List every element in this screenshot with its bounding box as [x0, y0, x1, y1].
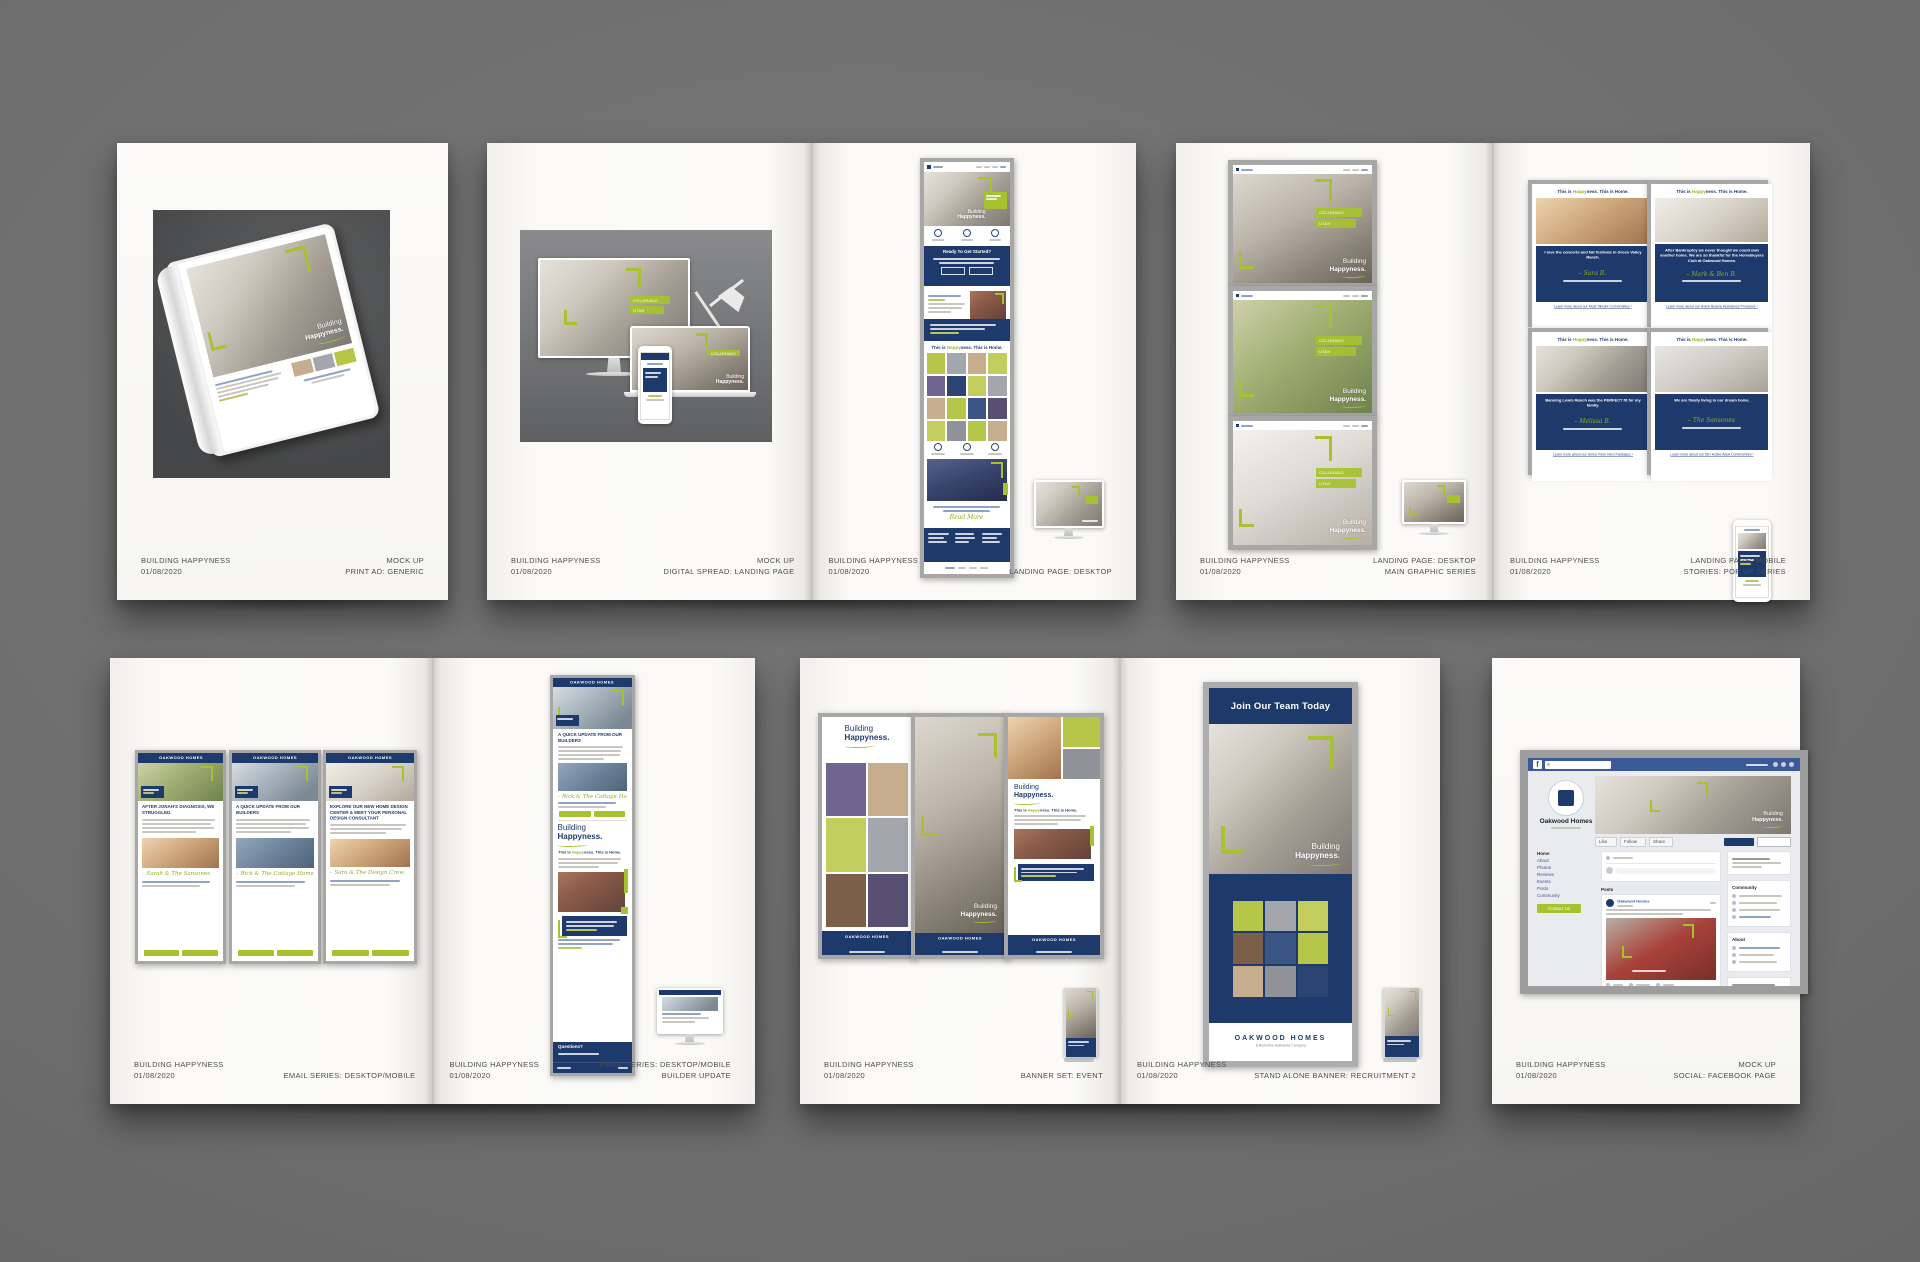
footer-title: BUILDING HAPPYNESS — [1510, 555, 1600, 567]
testimonial-signature: – Melissa B. — [1539, 418, 1646, 425]
page-footer-left: BUILDING HAPPYNESS 01/08/2020 — [1137, 1059, 1227, 1082]
landing-cta-band: Ready To Get Started? — [924, 246, 1010, 286]
post-photo[interactable] — [1606, 918, 1716, 980]
menu-item-posts[interactable]: Posts — [1537, 886, 1595, 891]
placeholder-copy-lines — [928, 291, 967, 319]
posts-label: Posts — [1601, 887, 1721, 892]
email-button[interactable] — [277, 950, 313, 956]
placeholder-copy-lines — [558, 802, 627, 808]
landing-footer — [924, 528, 1010, 562]
oakwood-logo: OAKWOOD HOMES — [138, 753, 223, 763]
send-message-button[interactable] — [1757, 837, 1791, 847]
page-email-series: OAKWOOD HOMES AFTER JONAH'S DIAGNOSIS, W… — [110, 658, 433, 1104]
page-main-graphic-series: COLORADO UTAH BuildingHappyness. — [1176, 143, 1493, 600]
footer-date: 01/08/2020 — [141, 566, 231, 578]
colorado-button[interactable]: COLORADO — [1316, 468, 1362, 477]
footer-label: DIGITAL SPREAD: LANDING PAGE — [664, 566, 795, 578]
page-footer-left: BUILDING HAPPYNESS 01/08/2020 — [1510, 555, 1600, 578]
banner-photo: BuildingHappyness. — [1209, 724, 1352, 874]
page-avatar[interactable] — [1548, 780, 1584, 816]
story-link[interactable]: Learn more about our Home Town Hero Pack… — [1536, 453, 1649, 457]
page-footer-right: MOCK UP DIGITAL SPREAD: LANDING PAGE — [664, 555, 795, 578]
footer-date: 01/08/2020 — [824, 1070, 914, 1082]
landing-quote-band — [924, 319, 1010, 341]
cover-row: Oakwood Homes BuildingHappyness. — [1537, 776, 1791, 834]
footer-date: 01/08/2020 — [1510, 566, 1600, 578]
campaign-logo: BuildingHappyness. — [961, 903, 998, 923]
placeholder-copy-lines — [330, 878, 410, 888]
footer-title: BUILDING HAPPYNESS — [824, 1059, 914, 1071]
placeholder-copy-lines — [1014, 815, 1094, 825]
utah-button[interactable]: UTAH — [1316, 219, 1356, 228]
sheet-banners: BuildingHappyness. OAKWOOD HOMES — [800, 658, 1440, 1104]
banner-heading-bar: Join Our Team Today — [1209, 688, 1352, 724]
email-button[interactable] — [182, 950, 218, 956]
colorado-button[interactable]: COLORADO — [708, 350, 740, 356]
notifications-icon[interactable] — [1773, 762, 1778, 767]
email-signature: – Rick & The Cottage Home Crew — [558, 794, 627, 800]
testimonial-box: We are finally living in our dream home.… — [1655, 394, 1768, 450]
footer-label: EMAIL SERIES: DESKTOP/MOBILE — [284, 1070, 416, 1082]
banner-copy: BuildingHappyness. This is Happyness. Th… — [1008, 779, 1100, 881]
email-header: OAKWOOD HOMES — [232, 753, 318, 763]
community-card: Community — [1727, 880, 1791, 927]
logo-tagline: A Berkshire Hathaway Company — [1209, 1044, 1352, 1048]
story-card-2: This is Happyness. This is Home. After B… — [1647, 180, 1768, 327]
rollup-banner-mockup — [1383, 988, 1417, 1068]
landing-bottom-bar — [924, 562, 1010, 574]
email-button[interactable] — [332, 950, 369, 956]
page-footer-left: BUILDING HAPPYNESS 01/08/2020 — [829, 555, 919, 578]
facebook-top-bar: f — [1528, 758, 1800, 771]
placeholder-copy-lines — [558, 858, 627, 868]
page-footer-left: BUILDING HAPPYNESS 01/08/2020 — [824, 1059, 914, 1082]
page-footer-right: EMAIL SERIES: DESKTOP/MOBILE — [284, 1070, 416, 1082]
search-input[interactable] — [1545, 761, 1611, 769]
messages-icon[interactable] — [1781, 762, 1786, 767]
page-banner-set: BuildingHappyness. OAKWOOD HOMES — [800, 658, 1120, 1104]
page-pop-up-series: This is Happyness. This is Home. I love … — [1493, 143, 1810, 600]
footer-label: STAND ALONE BANNER: RECRUITMENT 2 — [1254, 1070, 1416, 1082]
footer-title: BUILDING HAPPYNESS — [1200, 555, 1290, 567]
email-button[interactable] — [144, 950, 180, 956]
info-card — [1727, 851, 1791, 875]
read-more-link[interactable]: Read More — [924, 514, 1010, 521]
sheet-email-series: OAKWOOD HOMES AFTER JONAH'S DIAGNOSIS, W… — [110, 658, 755, 1104]
email-button[interactable] — [372, 950, 409, 956]
page-recruitment-banner: Join Our Team Today BuildingHappyness. — [1120, 658, 1440, 1104]
footer-date: 01/08/2020 — [1137, 1070, 1227, 1082]
utah-button[interactable]: UTAH — [1316, 479, 1356, 488]
placeholder-copy-lines — [142, 879, 219, 889]
story-link[interactable]: Learn more about our Home Buying Assista… — [1655, 305, 1768, 309]
banner-photo-mosaic — [822, 763, 912, 927]
oakwood-logo: OAKWOOD HOMES — [1235, 1035, 1327, 1042]
menu-icon[interactable] — [1789, 762, 1794, 767]
page-footer-right: EMAIL SERIES: DESKTOP/MOBILE BUILDER UPD… — [599, 1059, 731, 1082]
colorado-button[interactable]: COLORADO — [630, 296, 670, 304]
email-headline: A QUICK UPDATE FROM OUR BUILDERS — [558, 732, 627, 744]
landing-page-screenshot: BuildingHappyness. Ready To Get Started? — [924, 162, 1010, 574]
page-footer-left: BUILDING HAPPYNESS 01/08/2020 — [1200, 555, 1290, 578]
page-footer-left: BUILDING HAPPYNESS 01/08/2020 — [450, 1059, 540, 1082]
post-card: Oakwood Homes — [1601, 894, 1721, 986]
page-footer-right: LANDING PAGE: MOBILE STORIES: POP UP SER… — [1684, 555, 1786, 578]
story-link[interactable]: Learn more about our 55+ Active Adult Co… — [1655, 453, 1768, 457]
primary-cta-button[interactable] — [1724, 838, 1754, 846]
facebook-body: Oakwood Homes BuildingHappyness. — [1528, 771, 1800, 986]
testimonial-box: Banning Lewis Ranch was the PERFECT fit … — [1536, 394, 1649, 450]
event-banner-3: BuildingHappyness. This is Happyness. Th… — [1004, 713, 1104, 959]
footer-label: EMAIL SERIES: DESKTOP/MOBILE — [599, 1059, 731, 1071]
campaign-logo: BuildingHappyness. — [558, 824, 627, 847]
builder-update-frame: OAKWOOD HOMES A QUICK UPDATE FROM OUR BU… — [550, 675, 635, 1076]
placeholder-copy-lines — [236, 817, 314, 835]
menu-item-community[interactable]: Community — [1537, 893, 1595, 898]
quote-box — [562, 916, 627, 936]
campaign-logo: BuildingHappyness. — [957, 210, 985, 221]
footer-date: 01/08/2020 — [829, 566, 919, 578]
sheet-graphic-series: COLORADO UTAH BuildingHappyness. — [1176, 143, 1810, 600]
email-mockup-1: OAKWOOD HOMES AFTER JONAH'S DIAGNOSIS, W… — [135, 750, 226, 964]
menu-item-events[interactable]: Events — [1537, 879, 1595, 884]
sheet-digital-spread: COLORADO UTAH BuildingHappyness. — [487, 143, 1136, 600]
banner-photo-mosaic — [1008, 717, 1100, 779]
page-footer-right: LANDING PAGE: DESKTOP MAIN GRAPHIC SERIE… — [1373, 555, 1476, 578]
email-header: OAKWOOD HOMES — [138, 753, 223, 763]
email-signature: – Rick & The Cottage Home Crew — [236, 871, 314, 877]
campaign-logo: BuildingHappyness. — [1330, 388, 1367, 408]
menu-item-photos[interactable]: Photos — [1537, 865, 1595, 870]
placeholder-copy-lines — [330, 822, 410, 836]
hero-graphic-frame-2: COLORADO UTAH BuildingHappyness. — [1228, 286, 1377, 418]
oakwood-logo: OAKWOOD HOMES — [915, 933, 1005, 944]
magazine-mockup: Building Happyness. — [165, 222, 380, 458]
email-header: OAKWOOD HOMES — [553, 678, 632, 687]
page-landing-desktop: BuildingHappyness. Ready To Get Started? — [812, 143, 1137, 600]
logo-mark — [927, 165, 931, 169]
footer-label: BUILDER UPDATE — [599, 1070, 731, 1082]
testimonial-box: I love the concerts and fall festivals i… — [1536, 246, 1649, 302]
banner-mosaic-section — [1209, 874, 1352, 1023]
follow-button[interactable]: Follow — [1620, 837, 1646, 847]
testimonial-quote: We are finally living in our dream home. — [1658, 398, 1765, 403]
post-author[interactable]: Oakwood Homes — [1617, 899, 1710, 904]
about-card: About — [1727, 932, 1791, 972]
cover-photo[interactable]: BuildingHappyness. — [1595, 776, 1791, 834]
profile-column: Oakwood Homes — [1537, 776, 1595, 834]
hero-photo-family: COLORADO UTAH BuildingHappyness. — [1233, 174, 1372, 283]
footer-label: PRINT AD: GENERIC — [345, 566, 424, 578]
rollup-banner-mockup — [1064, 988, 1094, 1068]
aerial-photo-block — [558, 872, 625, 912]
email-mockup-3: OAKWOOD HOMES EXPLORE OUR NEW HOME DESIG… — [323, 750, 417, 964]
page-footer-left: BUILDING HAPPYNESS 01/08/2020 — [141, 555, 231, 578]
post-options-icon[interactable] — [1710, 902, 1716, 904]
footer-title: BUILDING HAPPYNESS — [1137, 1059, 1227, 1071]
testimonial-quote: After Bankruptcy we never thought we cou… — [1658, 248, 1765, 264]
email-body: A QUICK UPDATE FROM OUR BUILDERS – Rick … — [553, 729, 632, 954]
campaign-logo: BuildingHappyness. — [1330, 519, 1367, 539]
footer-date: 01/08/2020 — [450, 1070, 540, 1082]
page-footer-left: BUILDING HAPPYNESS 01/08/2020 — [511, 555, 601, 578]
footer-label: SOCIAL: FACEBOOK PAGE — [1673, 1070, 1776, 1082]
page-builder-update: OAKWOOD HOMES A QUICK UPDATE FROM OUR BU… — [433, 658, 756, 1104]
page-name[interactable]: Oakwood Homes — [1537, 818, 1595, 825]
oakwood-logo: OAKWOOD HOMES — [822, 931, 912, 943]
campaign-logo: BuildingHappyness. — [1330, 258, 1367, 278]
left-menu: Home About Photos Reviews Events Posts C… — [1537, 851, 1601, 986]
footer-label: MOCK UP — [345, 555, 424, 567]
campaign-logo: Building Happyness. — [303, 318, 346, 348]
banner-footer: OAKWOOD HOMES — [915, 933, 1005, 955]
aerial-photo — [970, 291, 1006, 319]
roofers-photo — [558, 763, 627, 791]
page-print-ad: Building Happyness. — [117, 143, 448, 600]
landing-icon-row — [924, 226, 1010, 246]
hero-photo-father-daughter: COLORADO UTAH BuildingHappyness. — [1233, 430, 1372, 545]
email-hero-photo — [232, 763, 318, 801]
menu-item-about[interactable]: About — [1537, 858, 1595, 863]
post-avatar — [1606, 899, 1614, 907]
banner-photo-mosaic — [1233, 901, 1329, 997]
campaign-logo: BuildingHappyness. — [1295, 843, 1340, 866]
placeholder-copy-lines — [236, 879, 314, 889]
story-photo — [1536, 346, 1649, 392]
banner-title: BuildingHappyness. — [822, 717, 912, 763]
site-header — [1233, 165, 1372, 174]
testimonial-signature: – Sara B. — [1539, 270, 1646, 277]
sheet-print-ad: Building Happyness. — [117, 143, 448, 600]
facebook-frame: f Oakwo — [1520, 750, 1808, 994]
questions-heading: Questions? — [558, 1044, 627, 1049]
footer-label: MAIN GRAPHIC SERIES — [1373, 566, 1476, 578]
email-headline: EXPLORE OUR NEW HOME DESIGN CENTER & MEE… — [330, 804, 410, 822]
email-headline: AFTER JONAH'S DIAGNOSIS, WE STRUGGLED. — [142, 804, 219, 816]
oakwood-logo: OAKWOOD HOMES — [326, 753, 414, 763]
sheet-facebook: f Oakwo — [1492, 658, 1800, 1104]
email-mockup-2: OAKWOOD HOMES A QUICK UPDATE FROM OUR BU… — [229, 750, 321, 964]
magazine-photo: Building Happyness. — [153, 210, 390, 478]
story-card-3: This is Happyness. This is Home. Banning… — [1528, 328, 1649, 475]
banner-photo: BuildingHappyness. — [915, 717, 1005, 933]
email-headline: A QUICK UPDATE FROM OUR BUILDERS — [236, 804, 314, 816]
campaign-logo: BuildingHappyness. — [716, 375, 744, 386]
email-secondary-photo — [330, 839, 410, 867]
footer-title: BUILDING HAPPYNESS — [1516, 1059, 1606, 1071]
monitor-mockup-small — [657, 988, 723, 1045]
page-facebook-mockup: f Oakwo — [1492, 658, 1800, 1104]
menu-item-reviews[interactable]: Reviews — [1537, 872, 1595, 877]
landing-headline: This is Happyness. This is Home. — [924, 345, 1010, 353]
facebook-logo-icon[interactable]: f — [1533, 760, 1542, 769]
hero-graphic-frame-3: COLORADO UTAH BuildingHappyness. — [1228, 416, 1377, 550]
footer-label: MOCK UP — [664, 555, 795, 567]
landing-readmore: Read More — [924, 501, 1010, 528]
monitor-mockup-small — [1402, 480, 1466, 535]
utah-button[interactable]: UTAH — [630, 306, 664, 314]
menu-item-home[interactable]: Home — [1537, 851, 1595, 856]
page-footer-right: LANDING PAGE: DESKTOP — [1009, 566, 1112, 578]
email-body: AFTER JONAH'S DIAGNOSIS, WE STRUGGLED. –… — [138, 801, 223, 961]
pages-liked-card — [1727, 977, 1791, 986]
email-hero-photo — [326, 763, 414, 801]
footer-label: BANNER SET: EVENT — [1021, 1070, 1103, 1082]
landing-hero: BuildingHappyness. — [924, 172, 1010, 226]
create-post-card[interactable] — [1601, 851, 1721, 882]
story-photo — [1655, 346, 1768, 392]
colorado-button[interactable]: COLORADO — [1316, 208, 1362, 217]
email-button[interactable] — [238, 950, 274, 956]
device-photo: COLORADO UTAH BuildingHappyness. — [520, 230, 772, 442]
oakwood-logo: OAKWOOD HOMES — [1008, 935, 1100, 945]
story-photo — [1655, 198, 1768, 242]
site-header — [1233, 291, 1372, 300]
monitor-mockup-small — [1034, 480, 1104, 539]
placeholder-copy-lines — [142, 817, 219, 835]
page-footer-left: BUILDING HAPPYNESS 01/08/2020 — [1516, 1059, 1606, 1082]
page-footer-right: MOCK UP SOCIAL: FACEBOOK PAGE — [1673, 1059, 1776, 1082]
right-column: Community About — [1727, 851, 1791, 986]
testimonial-quote: Banning Lewis Ranch was the PERFECT fit … — [1539, 398, 1646, 408]
email-signature: – Sara & The Design Crew — [330, 870, 410, 876]
builders-photo — [553, 687, 632, 729]
hero-cta-box[interactable] — [984, 192, 1007, 209]
email-body: EXPLORE OUR NEW HOME DESIGN CENTER & MEE… — [326, 801, 414, 961]
page-digital-spread-mockup: COLORADO UTAH BuildingHappyness. — [487, 143, 812, 600]
banner-logo-footer: OAKWOOD HOMES A Berkshire Hathaway Compa… — [1209, 1023, 1352, 1061]
email-hero-photo — [138, 763, 223, 801]
footer-date: 01/08/2020 — [511, 566, 601, 578]
phone-mockup — [638, 346, 672, 424]
cta-heading: Ready To Get Started? — [928, 249, 1006, 254]
page-footer-right: MOCK UP PRINT AD: GENERIC — [345, 555, 424, 578]
cta-button[interactable] — [969, 267, 993, 275]
placeholder-copy-lines — [558, 746, 627, 760]
footer-title: BUILDING HAPPYNESS — [141, 555, 231, 567]
landing-header — [924, 162, 1010, 172]
footer-title: BUILDING HAPPYNESS — [450, 1059, 540, 1071]
banner-footer: OAKWOOD HOMES — [1008, 935, 1100, 955]
banner-heading: Join Our Team Today — [1231, 701, 1331, 712]
campaign-logo: BuildingHappyness. — [1752, 811, 1783, 828]
email-signature: – Sarah & The Sansones — [142, 871, 219, 877]
content-row: Home About Photos Reviews Events Posts C… — [1537, 851, 1791, 986]
aerial-photo-block — [1014, 829, 1091, 859]
story-photo — [1536, 198, 1649, 244]
quote-box — [1018, 864, 1094, 882]
email-secondary-photo — [142, 838, 219, 868]
feed-column: Posts Oakwood Homes — [1601, 851, 1727, 986]
story-card-1: This is Happyness. This is Home. I love … — [1528, 180, 1649, 327]
footer-label: STORIES: POP UP SERIES — [1684, 566, 1786, 578]
contact-us-button[interactable]: Contact Us — [1537, 904, 1581, 913]
hero-graphic-frame-1: COLORADO UTAH BuildingHappyness. — [1228, 160, 1377, 288]
story-link[interactable]: Learn more about our Most Vibrant Commun… — [1536, 305, 1649, 309]
email-secondary-photo — [236, 838, 314, 868]
landing-icon-row — [924, 441, 1010, 459]
hero-photo-grandmother: COLORADO UTAH BuildingHappyness. — [1233, 300, 1372, 413]
footer-label: MOCK UP — [1673, 1059, 1776, 1071]
page-footer-left: BUILDING HAPPYNESS 01/08/2020 — [134, 1059, 224, 1082]
site-header — [1233, 421, 1372, 430]
photo-mosaic — [924, 353, 1010, 441]
testimonial-quote: I love the concerts and fall festivals i… — [1539, 250, 1646, 260]
testimonial-box: After Bankruptcy we never thought we cou… — [1655, 244, 1768, 302]
testimonial-signature: – The Sansones — [1658, 417, 1765, 424]
email-button[interactable] — [594, 811, 626, 817]
email-header: OAKWOOD HOMES — [326, 753, 414, 763]
page-action-bar: Like Follow Share — [1595, 837, 1791, 847]
landing-page-frame: BuildingHappyness. Ready To Get Started? — [920, 158, 1014, 578]
house-photo — [927, 459, 1007, 501]
footer-title: BUILDING HAPPYNESS — [134, 1059, 224, 1071]
placeholder-link-lines — [558, 939, 627, 949]
footer-title: BUILDING HAPPYNESS — [511, 555, 601, 567]
footer-label: LANDING PAGE: DESKTOP — [1373, 555, 1476, 567]
footer-date: 01/08/2020 — [1516, 1070, 1606, 1082]
story-card-4: This is Happyness. This is Home. We are … — [1647, 328, 1768, 475]
share-button[interactable]: Share — [1649, 837, 1673, 847]
footer-title: BUILDING HAPPYNESS — [829, 555, 919, 567]
page-footer-right: BANNER SET: EVENT — [1021, 1070, 1103, 1082]
event-banner-1: BuildingHappyness. OAKWOOD HOMES — [818, 713, 916, 959]
colorado-button[interactable]: COLORADO — [1316, 336, 1362, 345]
testimonial-signature: – Mark & Ben B. — [1658, 271, 1765, 278]
like-button[interactable]: Like — [1595, 837, 1617, 847]
banner-footer: OAKWOOD HOMES — [822, 931, 912, 955]
footer-date: 01/08/2020 — [134, 1070, 224, 1082]
cta-button[interactable] — [941, 267, 965, 275]
utah-button[interactable]: UTAH — [1316, 347, 1356, 356]
oakwood-logo: OAKWOOD HOMES — [553, 678, 632, 687]
recruitment-banner-frame: Join Our Team Today BuildingHappyness. — [1203, 682, 1358, 1067]
oakwood-logo: OAKWOOD HOMES — [232, 753, 318, 763]
event-banner-2: BuildingHappyness. OAKWOOD HOMES — [911, 713, 1009, 959]
footer-label: LANDING PAGE: MOBILE — [1684, 555, 1786, 567]
footer-date: 01/08/2020 — [1200, 566, 1290, 578]
email-button[interactable] — [559, 811, 591, 817]
landing-split-section — [924, 291, 1010, 319]
email-body: A QUICK UPDATE FROM OUR BUILDERS – Rick … — [232, 801, 318, 961]
footer-label: LANDING PAGE: DESKTOP — [1009, 566, 1112, 578]
page-footer-right: STAND ALONE BANNER: RECRUITMENT 2 — [1254, 1070, 1416, 1082]
